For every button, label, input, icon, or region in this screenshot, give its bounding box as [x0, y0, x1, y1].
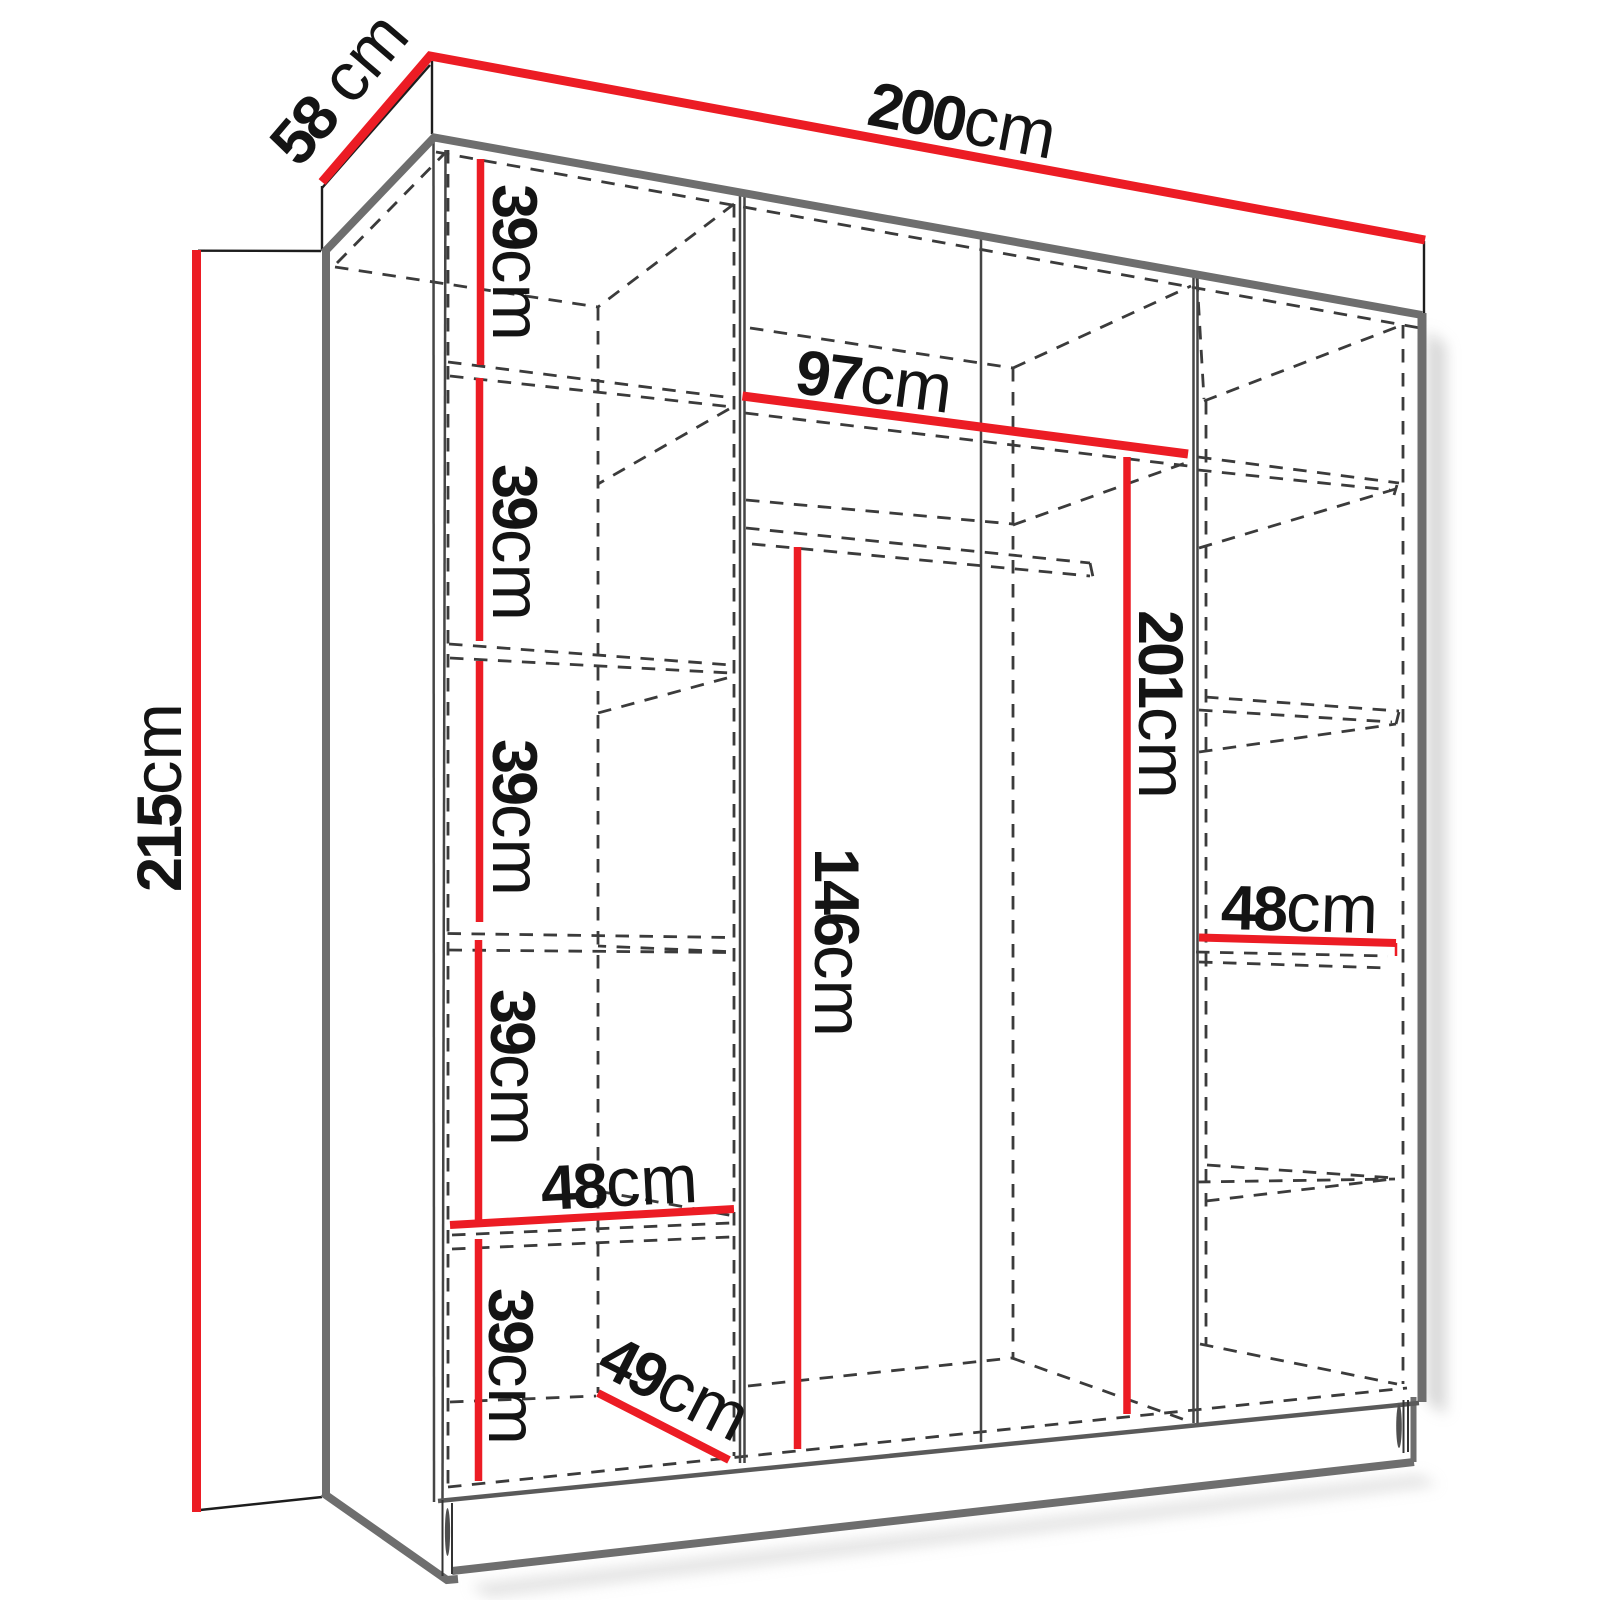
svg-text:39: 39 [479, 464, 549, 529]
svg-text:39: 39 [477, 989, 547, 1054]
svg-text:cm: cm [856, 340, 957, 428]
svg-text:cm: cm [1124, 707, 1201, 799]
svg-text:cm: cm [604, 1140, 700, 1222]
svg-text:cm: cm [478, 249, 555, 341]
svg-text:cm: cm [119, 703, 196, 795]
svg-text:cm: cm [478, 804, 555, 896]
svg-text:48: 48 [1220, 873, 1288, 945]
svg-text:cm: cm [800, 945, 877, 1037]
svg-text:cm: cm [1285, 869, 1379, 949]
svg-text:cm: cm [474, 1353, 551, 1445]
svg-text:cm: cm [476, 1054, 553, 1146]
svg-text:48: 48 [539, 1151, 609, 1224]
svg-text:39: 39 [479, 184, 549, 249]
svg-text:215: 215 [125, 794, 195, 892]
svg-text:cm: cm [478, 529, 555, 621]
svg-text:201: 201 [1125, 610, 1195, 708]
svg-text:97: 97 [792, 337, 866, 415]
svg-text:146: 146 [801, 848, 871, 945]
svg-text:39: 39 [479, 739, 549, 804]
svg-text:39: 39 [475, 1288, 545, 1353]
